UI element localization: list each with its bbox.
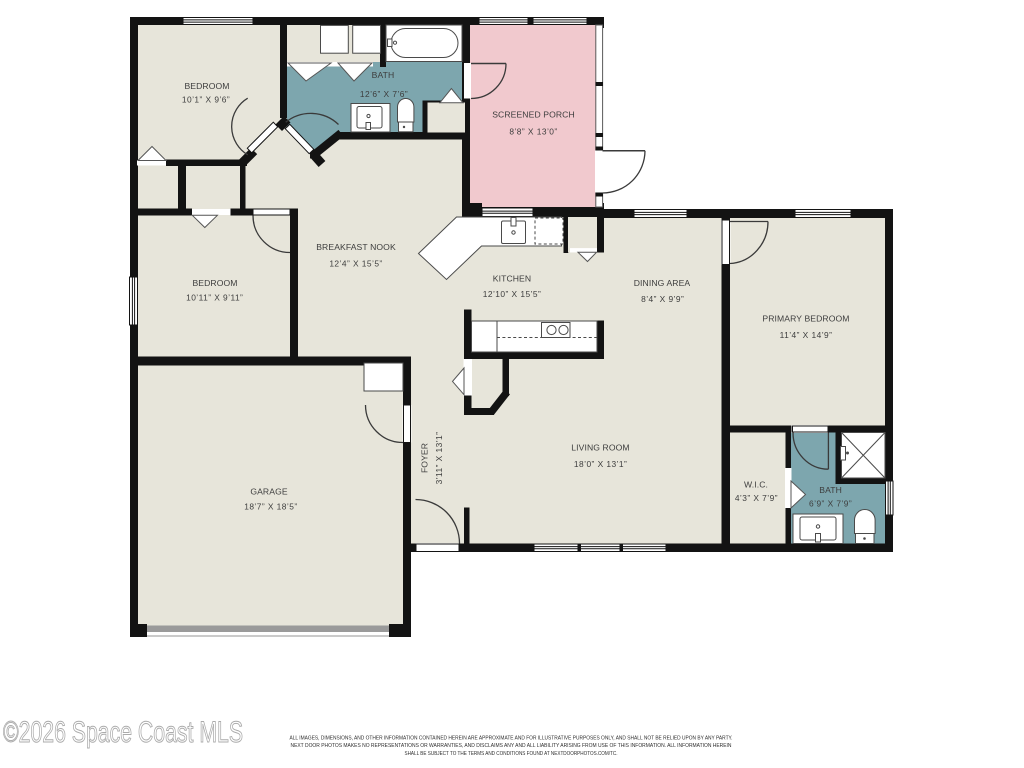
svg-text:18’0” X 13’1”: 18’0” X 13’1” bbox=[574, 459, 627, 469]
svg-text:11’4” X 14’9”: 11’4” X 14’9” bbox=[780, 330, 833, 340]
svg-text:12’10” X 15’5”: 12’10” X 15’5” bbox=[483, 289, 541, 299]
svg-text:18’7” X 18’5”: 18’7” X 18’5” bbox=[244, 502, 297, 512]
svg-text:SCREENED PORCH: SCREENED PORCH bbox=[492, 110, 575, 120]
svg-text:NEXT DOOR PHOTOS MAKES NO REPR: NEXT DOOR PHOTOS MAKES NO REPRESENTATION… bbox=[291, 743, 732, 749]
svg-text:W.I.C.: W.I.C. bbox=[744, 479, 768, 489]
svg-text:BEDROOM: BEDROOM bbox=[184, 81, 229, 91]
svg-text:10’1” X 9’6”: 10’1” X 9’6” bbox=[182, 95, 230, 105]
svg-text:SHALL BE SUBJECT TO THE TERMS: SHALL BE SUBJECT TO THE TERMS AND CONDIT… bbox=[405, 751, 618, 757]
svg-text:LIVING ROOM: LIVING ROOM bbox=[571, 443, 629, 453]
svg-text:3’11” X 13’1”: 3’11” X 13’1” bbox=[434, 432, 444, 485]
svg-text:4’3” X 7’9”: 4’3” X 7’9” bbox=[735, 493, 778, 503]
svg-text:GARAGE: GARAGE bbox=[250, 486, 288, 496]
svg-text:12’6” X 7’6”: 12’6” X 7’6” bbox=[360, 89, 408, 99]
svg-text:DINING AREA: DINING AREA bbox=[634, 278, 691, 288]
svg-text:8’8” X 13’0”: 8’8” X 13’0” bbox=[509, 126, 557, 136]
svg-text:ALL IMAGES, DIMENSIONS, AND OT: ALL IMAGES, DIMENSIONS, AND OTHER INFORM… bbox=[290, 735, 733, 741]
svg-text:6’9” X 7’9”: 6’9” X 7’9” bbox=[809, 498, 852, 508]
svg-text:PRIMARY BEDROOM: PRIMARY BEDROOM bbox=[762, 314, 849, 324]
svg-text:BEDROOM: BEDROOM bbox=[192, 278, 237, 288]
svg-text:12’4” X 15’5”: 12’4” X 15’5” bbox=[329, 258, 382, 268]
svg-text:BATH: BATH bbox=[372, 70, 395, 80]
svg-text:FOYER: FOYER bbox=[420, 443, 430, 473]
svg-text:BREAKFAST NOOK: BREAKFAST NOOK bbox=[316, 242, 396, 252]
svg-text:8’4” X 9’9”: 8’4” X 9’9” bbox=[641, 294, 684, 304]
svg-text:10’11” X 9’11”: 10’11” X 9’11” bbox=[186, 292, 243, 302]
svg-text:BATH: BATH bbox=[819, 485, 842, 495]
svg-text:©2026 Space Coast MLS: ©2026 Space Coast MLS bbox=[3, 716, 243, 749]
svg-text:KITCHEN: KITCHEN bbox=[493, 274, 531, 284]
